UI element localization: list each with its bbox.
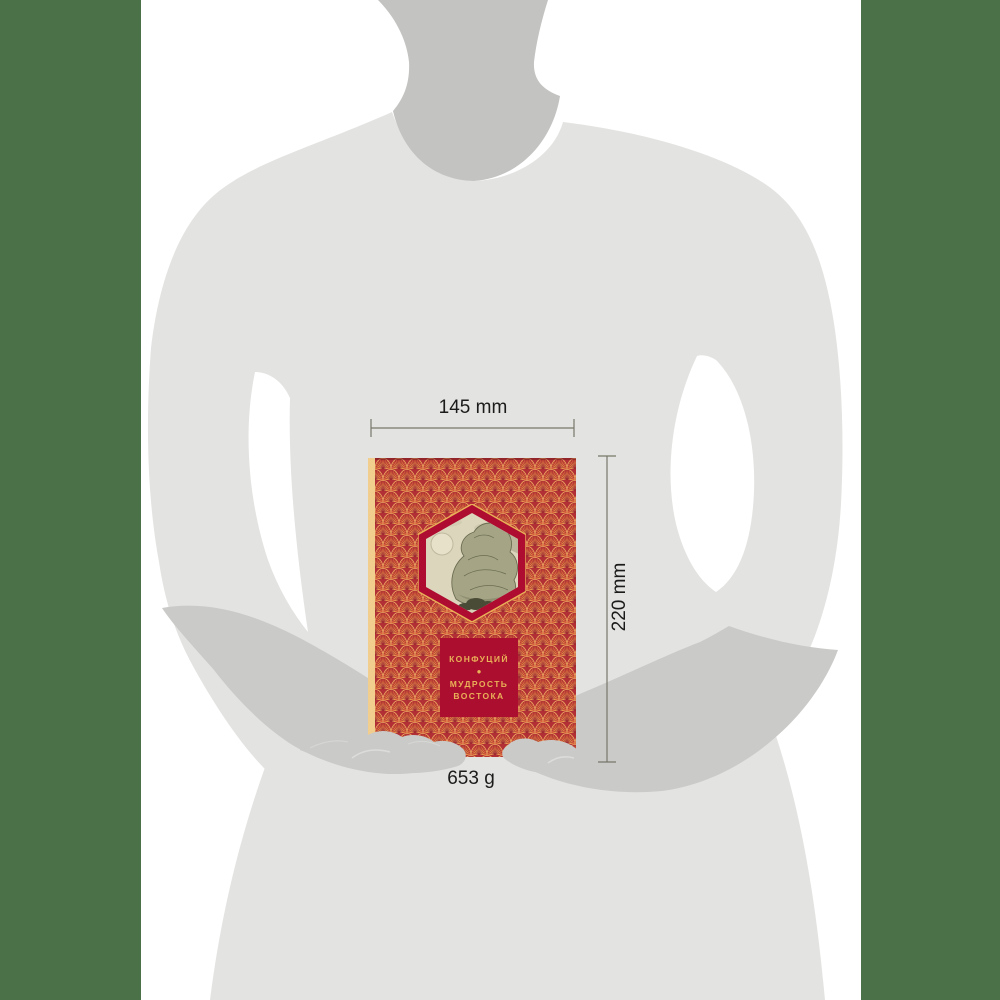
hexagon-landscape-icon [418,504,526,622]
book-cover: КОНФУЦИЙ ● МУДРОСТЬ ВОСТОКА [368,458,576,757]
hexagon-emblem [418,504,526,622]
dot-separator-icon: ● [477,665,482,678]
book-author: КОНФУЦИЙ [449,654,509,665]
product-dimension-illustration: КОНФУЦИЙ ● МУДРОСТЬ ВОСТОКА 145 mm 220 m… [0,0,1000,1000]
width-dimension-label: 145 mm [371,397,575,419]
height-dimension-label: 220 mm [609,537,631,657]
weight-label: 653 g [421,768,521,790]
book-title-box: КОНФУЦИЙ ● МУДРОСТЬ ВОСТОКА [440,638,518,717]
book-title-line1: МУДРОСТЬ [450,678,509,690]
landscape-painting [418,504,526,622]
book-title-line2: ВОСТОКА [453,690,504,702]
